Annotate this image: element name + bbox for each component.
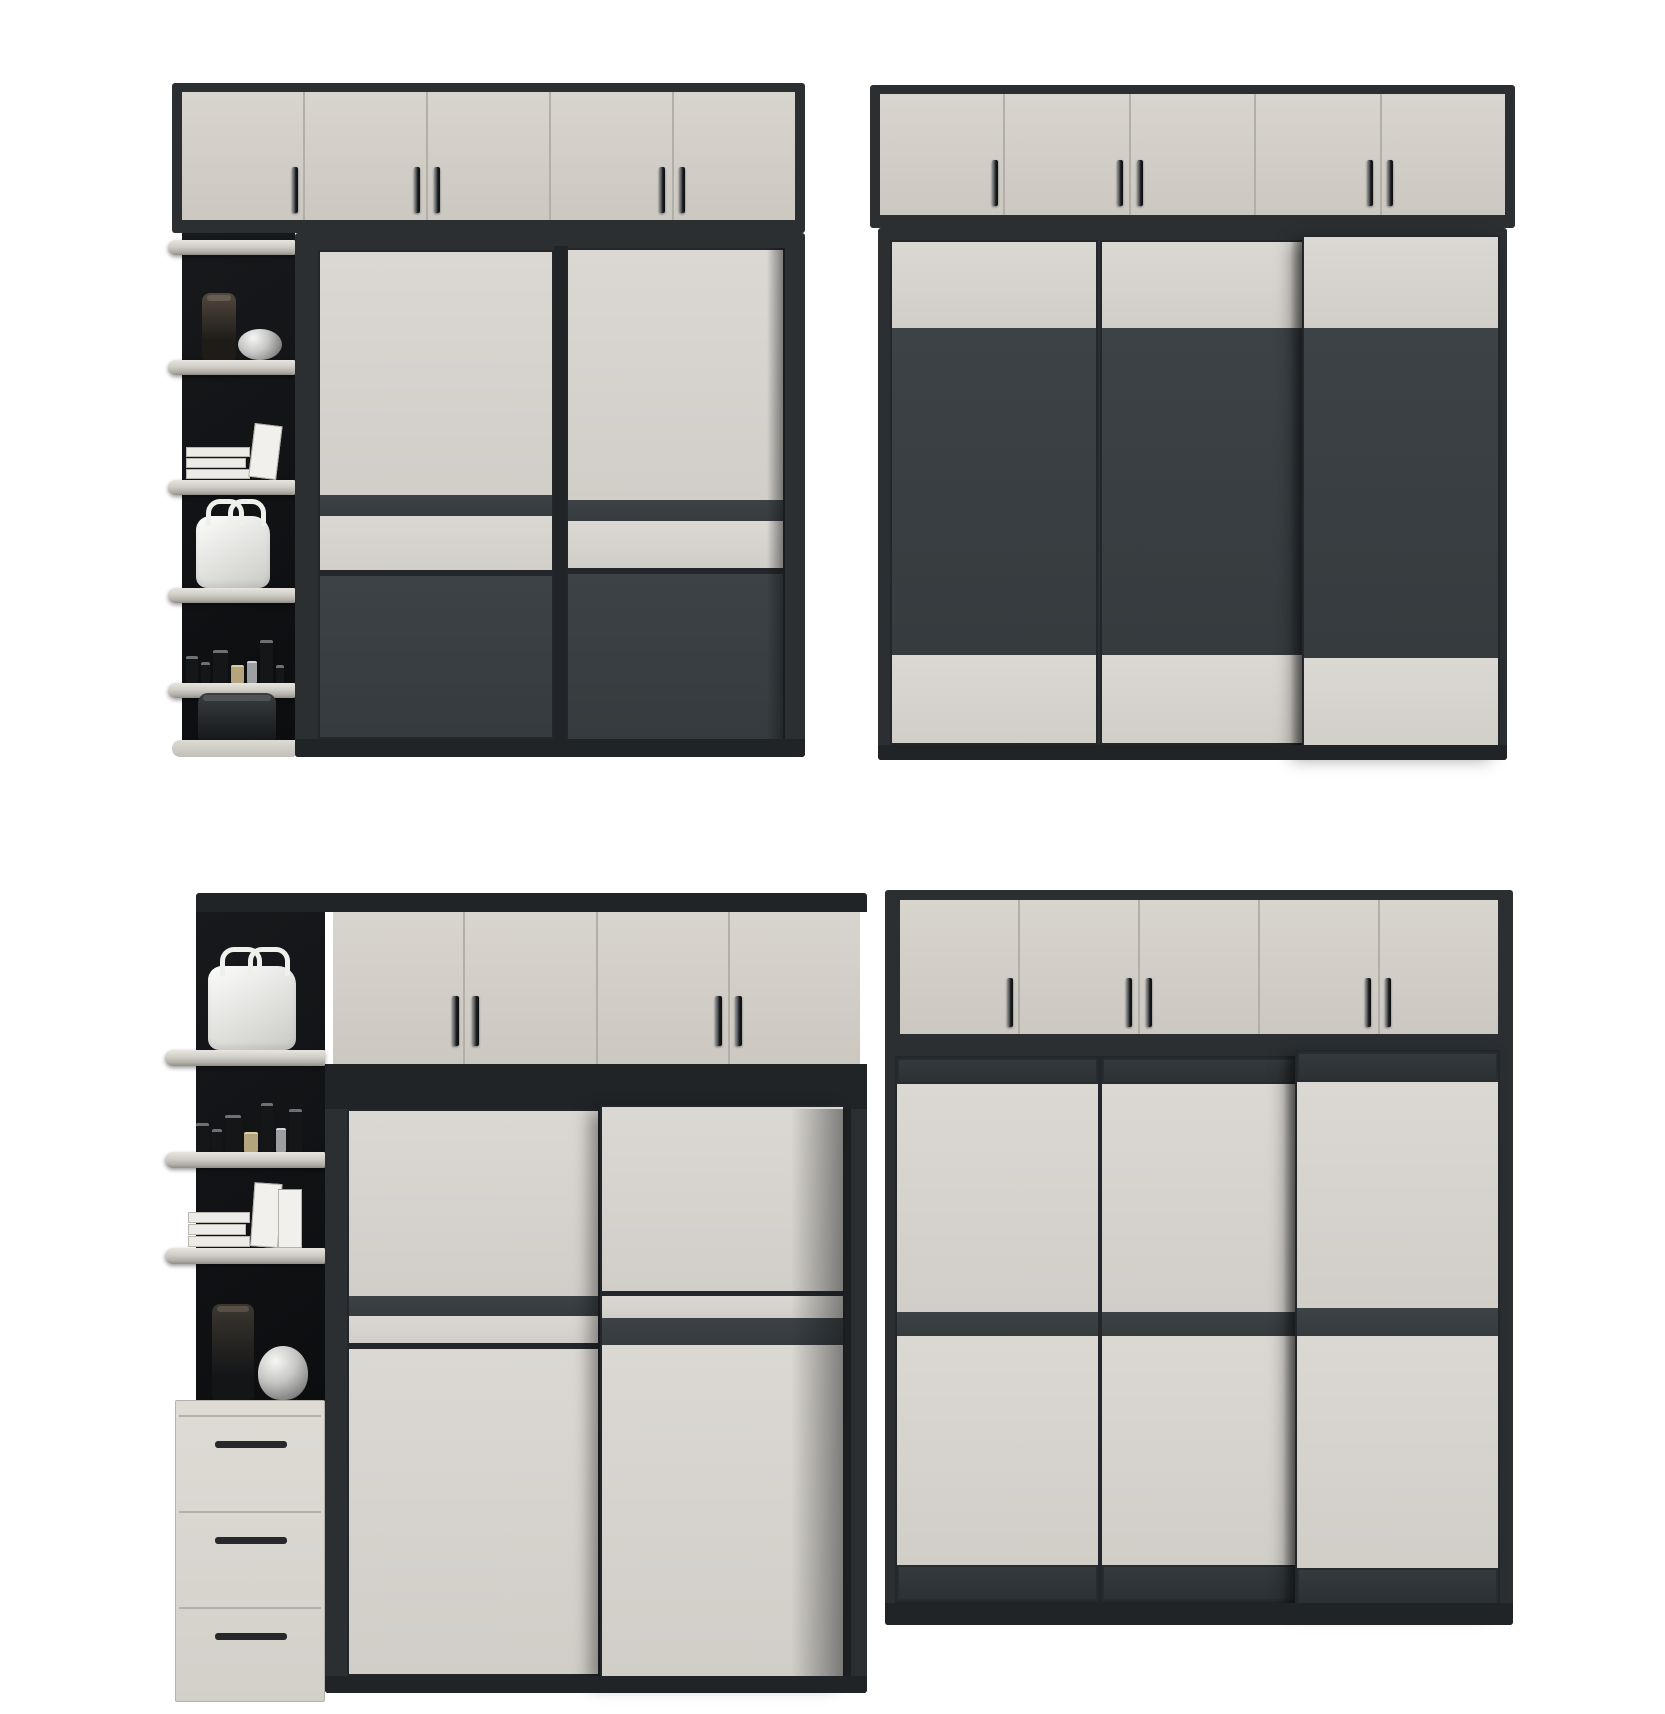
sliding-wardrobe	[885, 1049, 1513, 1625]
cabinet-door	[1005, 94, 1128, 215]
cabinet-door	[1131, 94, 1254, 215]
drawer-handle-slot	[215, 1633, 287, 1640]
door-panel-cream	[897, 1084, 1098, 1312]
drawer-handle-slot	[215, 1441, 287, 1448]
door-panel-cream	[602, 1296, 843, 1318]
door-panel-cream	[568, 250, 783, 500]
cosmetic-bottle	[260, 640, 273, 683]
door-accent-band	[602, 1318, 843, 1345]
cabinet-handle	[1387, 160, 1393, 206]
drawer-divider	[179, 1511, 321, 1513]
cabinet-bottom-rail	[325, 1064, 867, 1109]
door-panel-cream	[1102, 655, 1304, 743]
sliding-door-middle	[1100, 1056, 1303, 1603]
base-rail	[878, 745, 1507, 760]
shelf	[168, 588, 295, 603]
top-cabinet-doors	[333, 912, 860, 1064]
drawer-divider	[179, 1607, 321, 1609]
magazine-stack	[188, 1178, 304, 1248]
door-panel-cream	[1102, 1336, 1301, 1565]
top-cabinet-doors	[182, 92, 795, 220]
shelf-column-base	[172, 740, 295, 757]
top-cabinet	[885, 890, 1513, 1049]
cabinet-handle	[1126, 978, 1132, 1027]
cosmetic-bottle	[261, 1103, 273, 1152]
cosmetic-bottle	[289, 1109, 302, 1152]
cabinet-handle	[1146, 978, 1152, 1027]
sliding-door-middle	[1100, 240, 1306, 745]
door-header-band	[1297, 1052, 1498, 1082]
cabinet-door	[428, 92, 549, 220]
handbag-handle	[248, 947, 290, 976]
door-accent-band	[320, 495, 552, 516]
cabinet-handle	[434, 167, 440, 213]
door-panel-dark	[320, 576, 552, 737]
door-panel-cream	[602, 1107, 843, 1291]
cosmetic-bottle	[196, 1123, 209, 1152]
cabinet-door	[1256, 94, 1379, 215]
door-panel-cream	[349, 1111, 598, 1296]
door-footer-band	[1102, 1565, 1301, 1601]
cabinet-door	[182, 92, 303, 220]
shelf	[165, 1050, 325, 1066]
door-panel-cream	[1304, 658, 1498, 751]
door-panel-cream	[892, 242, 1096, 328]
door-header-band	[897, 1058, 1098, 1084]
door-panel-dark	[1304, 328, 1498, 658]
door-panel-cream	[1102, 1084, 1301, 1312]
white-handbag	[196, 516, 270, 588]
door-footer-band	[1297, 1568, 1498, 1606]
cabinet-handle	[1007, 978, 1013, 1027]
cabinet-handle	[414, 167, 420, 213]
door-panel-cream	[349, 1316, 598, 1343]
flat-magazines	[188, 1212, 250, 1248]
furniture-render-scene	[0, 0, 1665, 1714]
cosmetic-bottle	[276, 665, 284, 683]
glass-vase	[202, 293, 236, 360]
cabinet-door	[551, 92, 672, 220]
door-panel-cream	[602, 1345, 843, 1678]
cosmetic-bottle	[212, 1129, 222, 1152]
door-panel-cream	[568, 521, 783, 568]
cosmetic-jar	[231, 665, 244, 683]
top-cabinet	[333, 912, 860, 1064]
door-panel-cream	[1102, 242, 1304, 328]
cabinet-door	[465, 912, 595, 1064]
cabinet-handle	[472, 996, 479, 1046]
base-rail	[325, 1676, 867, 1693]
black-storage-box	[198, 693, 276, 740]
cosmetic-bottle	[201, 662, 210, 683]
cabinet-handle	[1117, 160, 1123, 206]
white-handbag	[208, 966, 296, 1050]
top-frame-rail	[196, 893, 867, 912]
door-header-band	[1102, 1058, 1301, 1084]
door-accent-band	[1102, 1312, 1301, 1336]
door-panel-dark	[568, 574, 783, 739]
door-panel-cream	[897, 1336, 1098, 1565]
sliding-wardrobe	[295, 233, 805, 757]
cabinet-door	[305, 92, 426, 220]
door-panel-cream	[349, 1349, 598, 1674]
cosmetic-bottles	[196, 1100, 312, 1152]
shelf	[165, 1152, 325, 1168]
shelf	[168, 240, 295, 255]
door-accent-band	[897, 1312, 1098, 1336]
sliding-door-left	[318, 250, 554, 739]
top-cabinet	[172, 83, 805, 233]
sliding-door-left	[895, 1056, 1100, 1603]
cabinet-door	[674, 92, 795, 220]
cabinet-handle	[452, 996, 459, 1046]
leaning-book	[248, 423, 282, 480]
door-accent-band	[349, 1296, 598, 1316]
door-panel-dark	[1102, 328, 1304, 655]
silver-vase	[258, 1346, 308, 1400]
drawer-chest	[175, 1400, 325, 1702]
cabinet-handle	[292, 167, 298, 213]
base-rail	[885, 1603, 1513, 1625]
cabinet-handle	[659, 167, 665, 213]
cosmetic-bottle	[213, 650, 228, 683]
door-panel-cream	[1297, 1336, 1498, 1568]
cosmetic-bottle	[276, 1128, 286, 1152]
sliding-door-right-front	[1302, 235, 1500, 753]
cabinet-door	[333, 912, 463, 1064]
top-cabinet-doors	[880, 94, 1505, 215]
sliding-wardrobe	[325, 1109, 867, 1693]
shelf	[165, 1248, 325, 1264]
cabinet-door	[1260, 900, 1378, 1034]
door-panel-cream	[892, 655, 1096, 743]
cabinet-handle	[679, 167, 685, 213]
cabinet-door	[730, 912, 860, 1064]
cosmetic-bottle	[186, 656, 198, 683]
cabinet-door	[598, 912, 728, 1064]
sliding-door-left	[890, 240, 1098, 745]
sliding-door-left	[347, 1109, 600, 1676]
sliding-door-right	[566, 248, 785, 741]
cabinet-handle	[715, 996, 722, 1046]
door-panel-dark	[892, 328, 1096, 655]
cabinet-door	[1020, 900, 1138, 1034]
shelf	[168, 480, 295, 495]
wardrobe-bottom-right	[885, 890, 1513, 1625]
handbag-handle	[228, 499, 266, 526]
wardrobe-bottom-left	[180, 880, 867, 1702]
cabinet-handle	[1367, 160, 1373, 206]
cabinet-door	[900, 900, 1018, 1034]
cabinet-door	[1140, 900, 1258, 1034]
cabinet-door	[1380, 900, 1498, 1034]
wardrobe-top-left	[172, 83, 805, 757]
door-panel-cream	[1297, 1082, 1498, 1308]
cabinet-handle	[735, 996, 742, 1046]
cabinet-handle	[1137, 160, 1143, 206]
base-rail	[295, 739, 805, 757]
top-cabinet	[870, 85, 1515, 228]
door-panel-cream	[320, 252, 552, 495]
black-cylinder-vase	[212, 1304, 254, 1400]
upright-book	[278, 1189, 302, 1248]
sliding-door-right-front	[600, 1105, 845, 1680]
cosmetic-bottle	[247, 661, 257, 683]
magazine-stack	[186, 425, 282, 480]
top-cabinet-doors	[900, 900, 1498, 1034]
drawer-divider	[179, 1415, 321, 1417]
cabinet-handle	[992, 160, 998, 206]
cosmetic-bottle	[225, 1115, 241, 1152]
door-accent-band	[568, 500, 783, 521]
sliding-door-right-front	[1295, 1050, 1500, 1608]
sliding-wardrobe	[878, 228, 1507, 760]
cabinet-door	[880, 94, 1003, 215]
cosmetic-bottles	[186, 639, 290, 683]
door-panel-cream	[1304, 237, 1498, 328]
door-footer-band	[897, 1565, 1098, 1601]
cabinet-handle	[1365, 978, 1371, 1027]
door-accent-band	[1297, 1308, 1498, 1336]
wardrobe-top-right	[870, 85, 1515, 760]
drawer-handle-slot	[215, 1537, 287, 1544]
silver-ornament	[238, 329, 282, 360]
flat-magazines	[186, 447, 250, 480]
shelf	[168, 360, 295, 375]
door-panel-cream	[320, 516, 552, 570]
cabinet-door	[1382, 94, 1505, 215]
cabinet-handle	[1385, 978, 1391, 1027]
cosmetic-jar	[244, 1132, 258, 1152]
